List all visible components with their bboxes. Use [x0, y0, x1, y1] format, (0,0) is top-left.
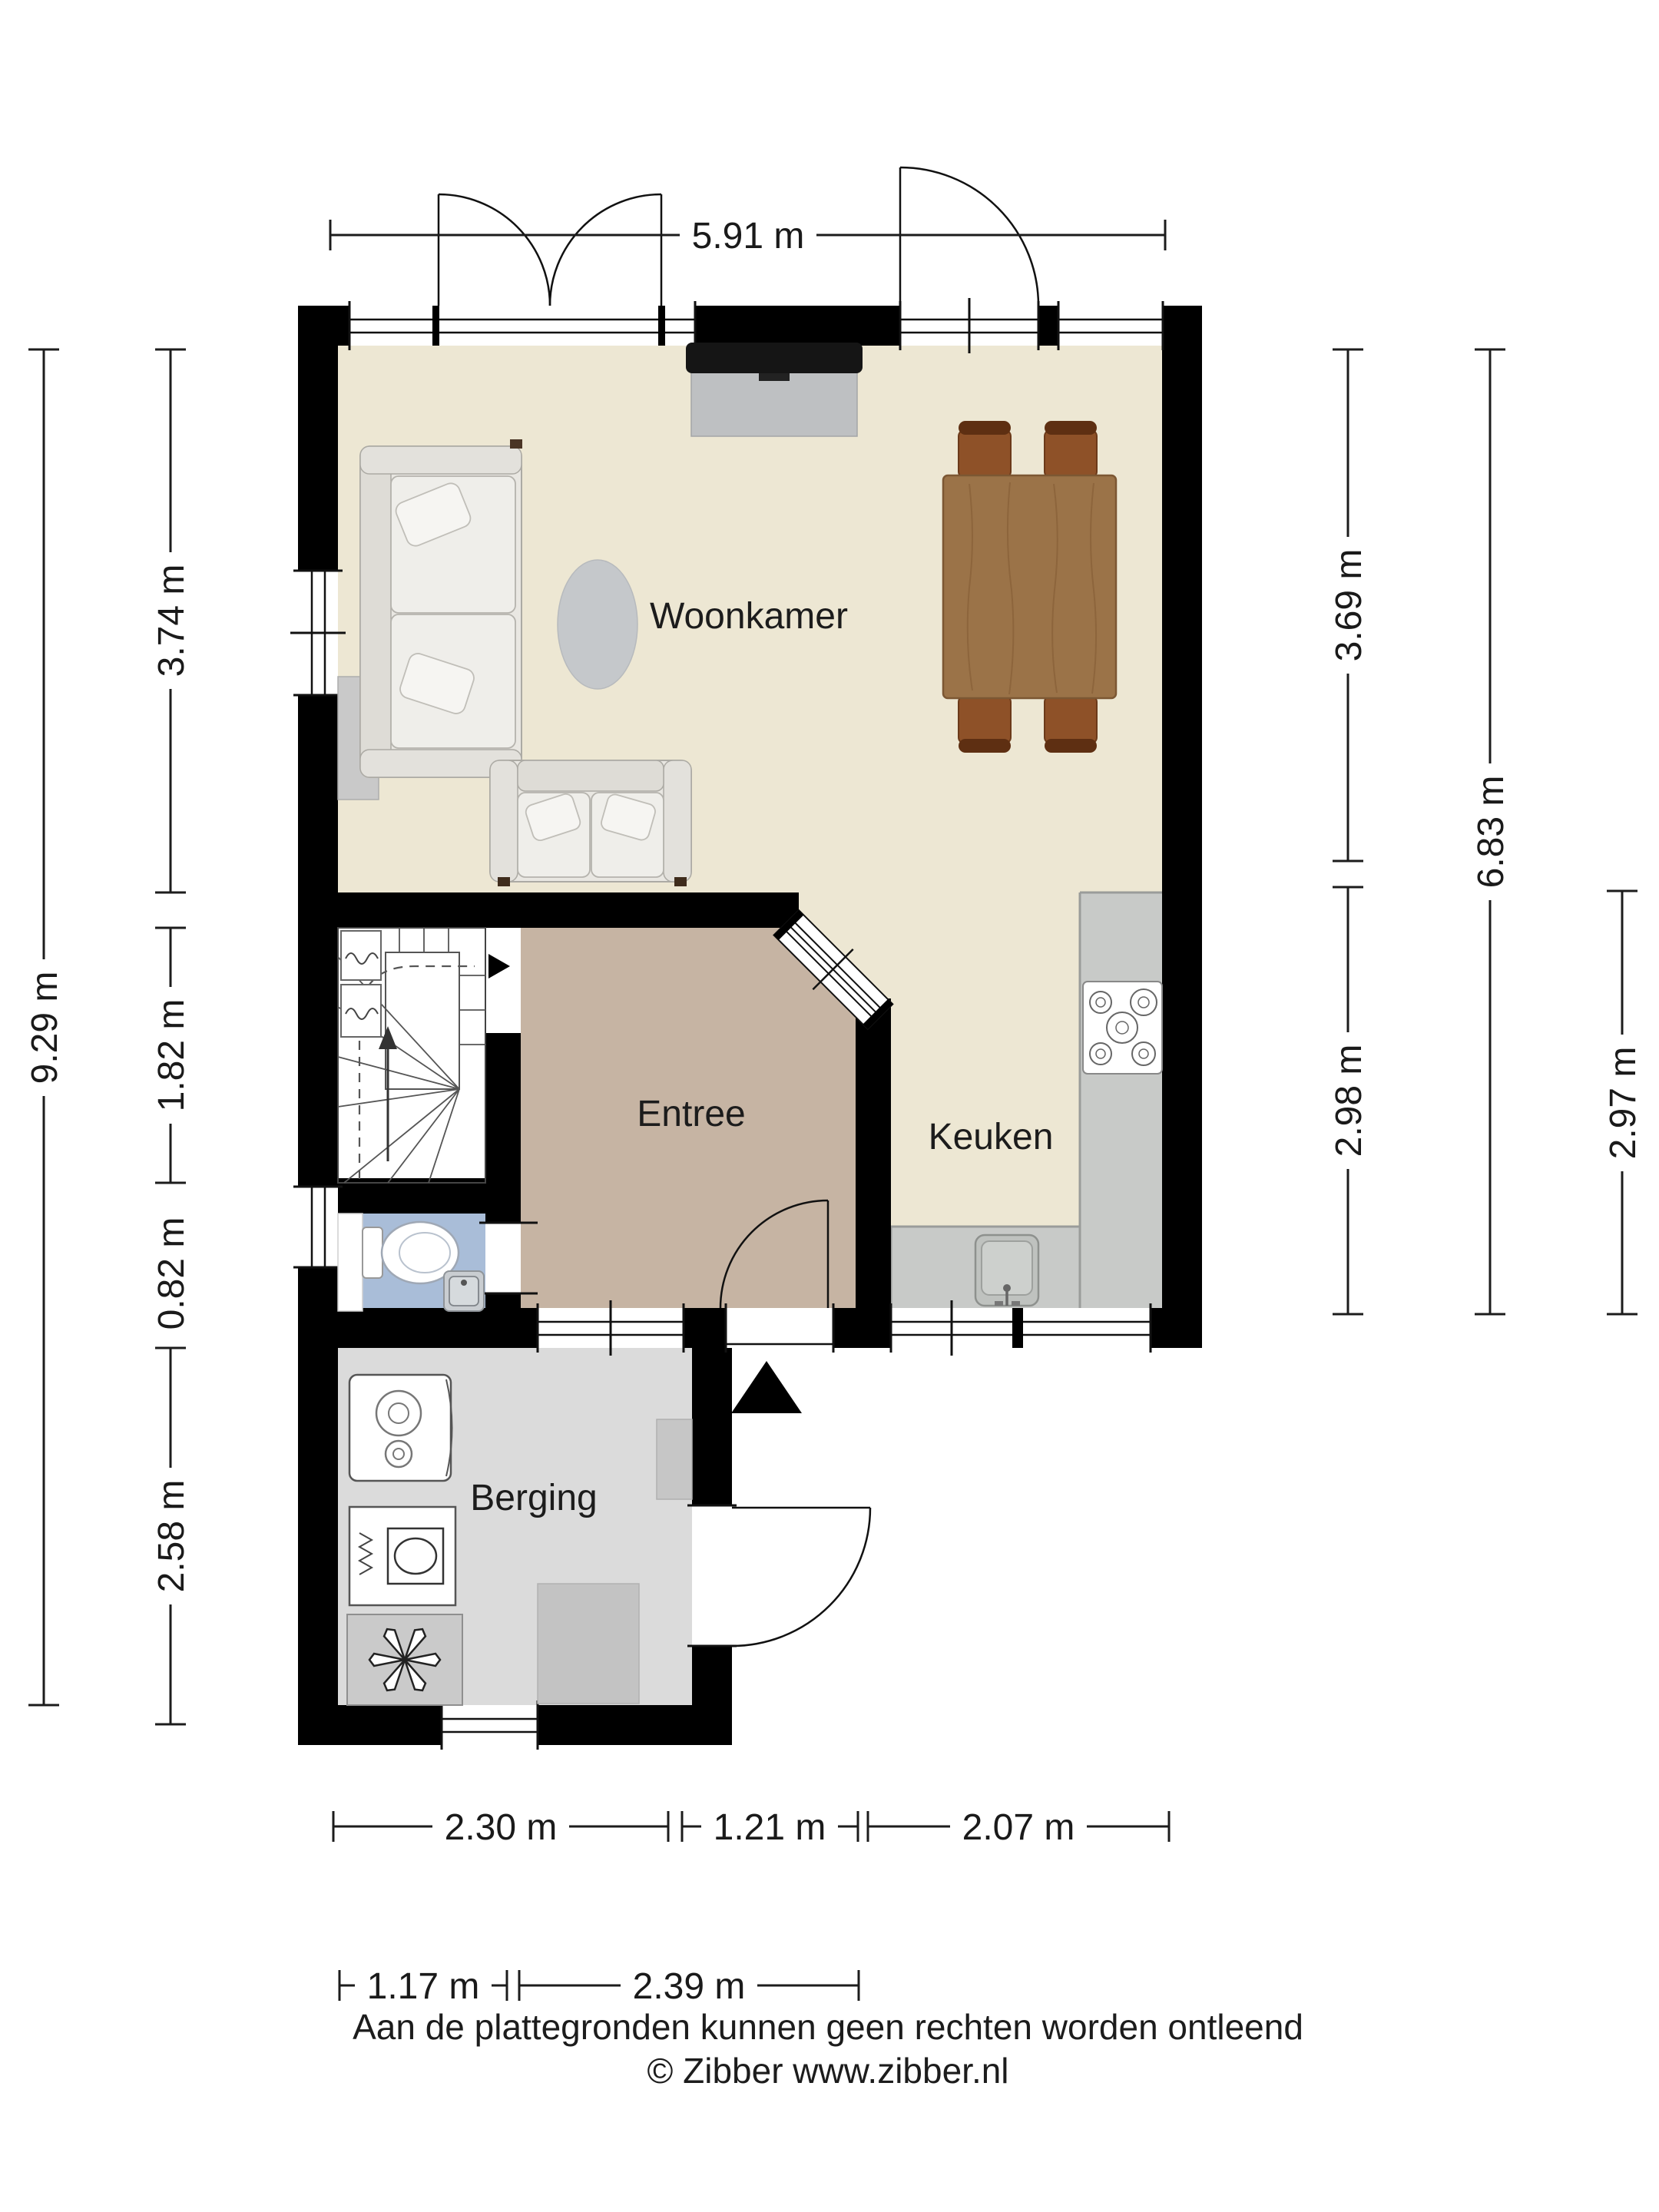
- wall-woonkamer-stairs: [338, 892, 799, 928]
- svg-text:1.82 m: 1.82 m: [151, 999, 192, 1112]
- window-left-toilet: [293, 1187, 343, 1267]
- boiler-icon: [349, 1375, 452, 1481]
- svg-text:2.07 m: 2.07 m: [962, 1807, 1075, 1848]
- radiator-icon: [341, 931, 381, 980]
- berging-door-swing: [732, 1508, 870, 1646]
- dim-bottom2-left: 1.17 m: [339, 1964, 507, 2007]
- dim-width-total: 5.91 m: [330, 214, 1165, 257]
- svg-text:6.83 m: 6.83 m: [1471, 776, 1512, 889]
- french-doors-swing: [439, 194, 661, 306]
- stairs-entry-opening: [485, 928, 521, 1033]
- sofa-large: [360, 439, 522, 785]
- entrance-marker-icon: [731, 1361, 802, 1413]
- svg-text:2.39 m: 2.39 m: [633, 1966, 746, 2007]
- dim-right-total: 6.83 m: [1469, 349, 1512, 1314]
- dim-bottom-berging: 2.30 m: [333, 1805, 668, 1848]
- svg-text:5.91 m: 5.91 m: [692, 216, 805, 257]
- wall-entree-keuken: [856, 998, 891, 1308]
- dining-chair: [1045, 421, 1097, 478]
- svg-text:3.74 m: 3.74 m: [151, 565, 192, 677]
- dim-woonkamer-right: 3.69 m: [1326, 349, 1369, 861]
- kitchen-sink: [975, 1235, 1038, 1306]
- toilet-cistern: [363, 1227, 382, 1278]
- window-top-left: [349, 301, 695, 350]
- svg-text:1.17 m: 1.17 m: [367, 1966, 480, 2007]
- kitchen-counter-right: [1080, 892, 1164, 1311]
- tv-cabinet: [691, 372, 857, 436]
- dim-toilet-left: 0.82 m: [149, 1205, 192, 1342]
- window-top-right: [1058, 301, 1163, 350]
- dim-height-total: 9.29 m: [22, 349, 65, 1705]
- window-berging-bottom: [442, 1700, 538, 1750]
- window-top-middle: [900, 298, 1038, 353]
- terrace-door-swing: [900, 167, 1038, 306]
- wall-stairs-east-lower: [485, 1293, 521, 1308]
- gas-hob: [1083, 982, 1162, 1074]
- copyright-text: © Zibber www.zibber.nl: [647, 2051, 1008, 2091]
- window-south-entree: [538, 1300, 684, 1356]
- dim-woonkamer-left: 3.74 m: [149, 349, 192, 892]
- keuken-label: Keuken: [929, 1117, 1054, 1157]
- doormat: [538, 1584, 639, 1704]
- dim-bottom-entrance: 1.21 m: [682, 1805, 858, 1848]
- svg-text:2.98 m: 2.98 m: [1329, 1045, 1369, 1157]
- entree-label: Entree: [637, 1094, 745, 1134]
- dim-keuken-far-right: 2.97 m: [1601, 891, 1644, 1314]
- woonkamer-label: Woonkamer: [650, 596, 848, 637]
- disclaimer-text: Aan de plattegronden kunnen geen rechten…: [353, 2007, 1303, 2047]
- toilet-shelf: [338, 1214, 363, 1311]
- window-south-keuken-2: [1023, 1303, 1151, 1353]
- wall-right: [1162, 306, 1202, 1348]
- dining-chair: [1045, 696, 1097, 753]
- washing-machine-icon: [349, 1507, 455, 1605]
- svg-text:0.82 m: 0.82 m: [151, 1217, 192, 1330]
- front-door-opening: [726, 1303, 833, 1353]
- svg-text:2.30 m: 2.30 m: [445, 1807, 558, 1848]
- radiator-icon: [341, 985, 381, 1037]
- sofa-small: [490, 760, 691, 886]
- rug: [558, 560, 637, 689]
- dim-berging-left: 2.58 m: [149, 1348, 192, 1724]
- berging-door-opening: [687, 1505, 737, 1646]
- dining-chair: [959, 421, 1011, 478]
- window-south-keuken-1: [891, 1300, 1012, 1356]
- footer: Aan de plattegronden kunnen geen rechten…: [353, 2007, 1303, 2091]
- berging-label: Berging: [470, 1478, 597, 1518]
- svg-text:2.97 m: 2.97 m: [1603, 1047, 1644, 1160]
- window-left-woonkamer: [290, 571, 346, 695]
- dim-bottom2-mid: 2.39 m: [519, 1964, 859, 2007]
- svg-text:9.29 m: 9.29 m: [25, 972, 65, 1084]
- svg-text:1.21 m: 1.21 m: [714, 1807, 826, 1848]
- wall-shelf: [657, 1419, 692, 1499]
- ventilation-unit-icon: [347, 1614, 462, 1705]
- hand-basin: [444, 1271, 484, 1311]
- svg-text:3.69 m: 3.69 m: [1329, 549, 1369, 662]
- dim-bottom-keuken: 2.07 m: [868, 1805, 1169, 1848]
- dim-keuken-right: 2.98 m: [1326, 887, 1369, 1314]
- wall-left: [298, 306, 338, 1745]
- dining-chair: [959, 696, 1011, 753]
- dim-stairs-left: 1.82 m: [149, 928, 192, 1183]
- svg-text:2.58 m: 2.58 m: [151, 1480, 192, 1593]
